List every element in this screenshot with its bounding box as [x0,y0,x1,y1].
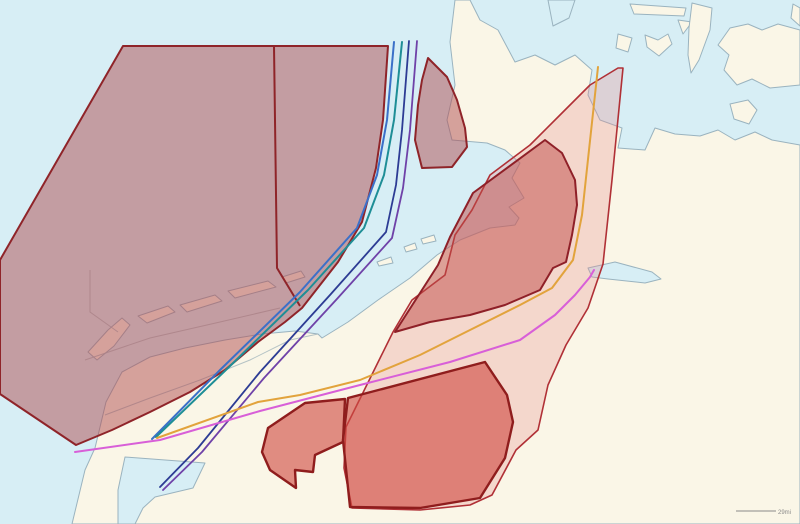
map-canvas[interactable]: 29mi [0,0,800,524]
map-svg: 29mi [0,0,800,524]
scale-bar-label: 29mi [778,510,791,516]
